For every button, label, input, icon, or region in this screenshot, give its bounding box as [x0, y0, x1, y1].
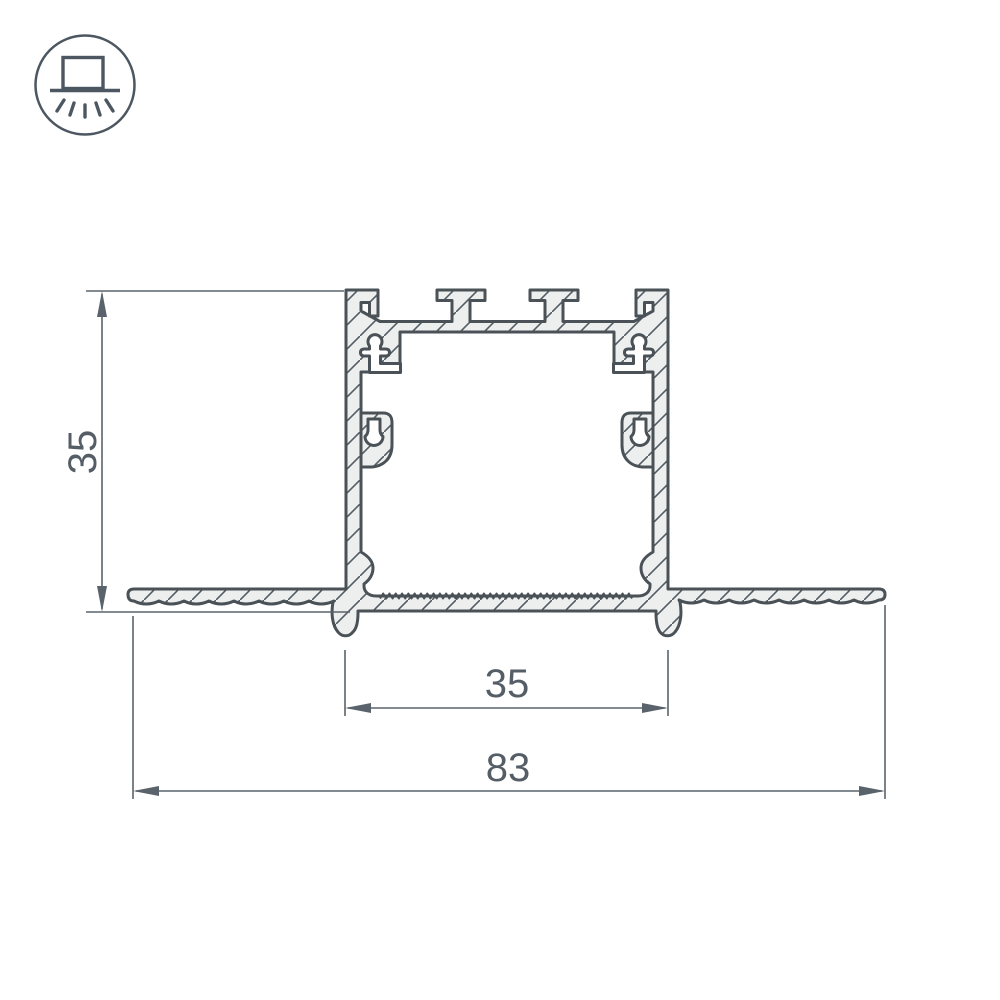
icon-fixture-box — [63, 58, 103, 89]
profile-metal-hatch-outline — [128, 290, 885, 636]
arrowhead-right — [642, 703, 668, 713]
screw-hook-left — [361, 413, 392, 467]
arrowhead-right — [859, 786, 885, 796]
screw-hook-right — [622, 413, 653, 467]
recessed-light-icon — [36, 36, 135, 135]
icon-light-rays — [57, 100, 113, 117]
dimensions: 35 35 83 — [61, 291, 885, 799]
technical-drawing-page: 35 35 83 — [0, 0, 1000, 1000]
screw-port-left-mid — [365, 419, 383, 446]
dim-label-height: 35 — [61, 430, 105, 475]
dimension-height — [86, 291, 350, 612]
arrowhead-down — [97, 586, 107, 612]
screw-port-right-mid — [631, 419, 649, 446]
profile-cross-section — [128, 290, 885, 636]
arrowhead-left — [133, 786, 159, 796]
arrowhead-left — [345, 703, 371, 713]
arrowhead-up — [97, 291, 107, 317]
icon-circle — [36, 36, 135, 135]
profile-metal-body — [128, 290, 885, 636]
dim-label-inner-width: 35 — [485, 662, 530, 706]
profile-drawing-svg: 35 35 83 — [0, 0, 1000, 1000]
dim-label-outer-width: 83 — [486, 746, 531, 790]
